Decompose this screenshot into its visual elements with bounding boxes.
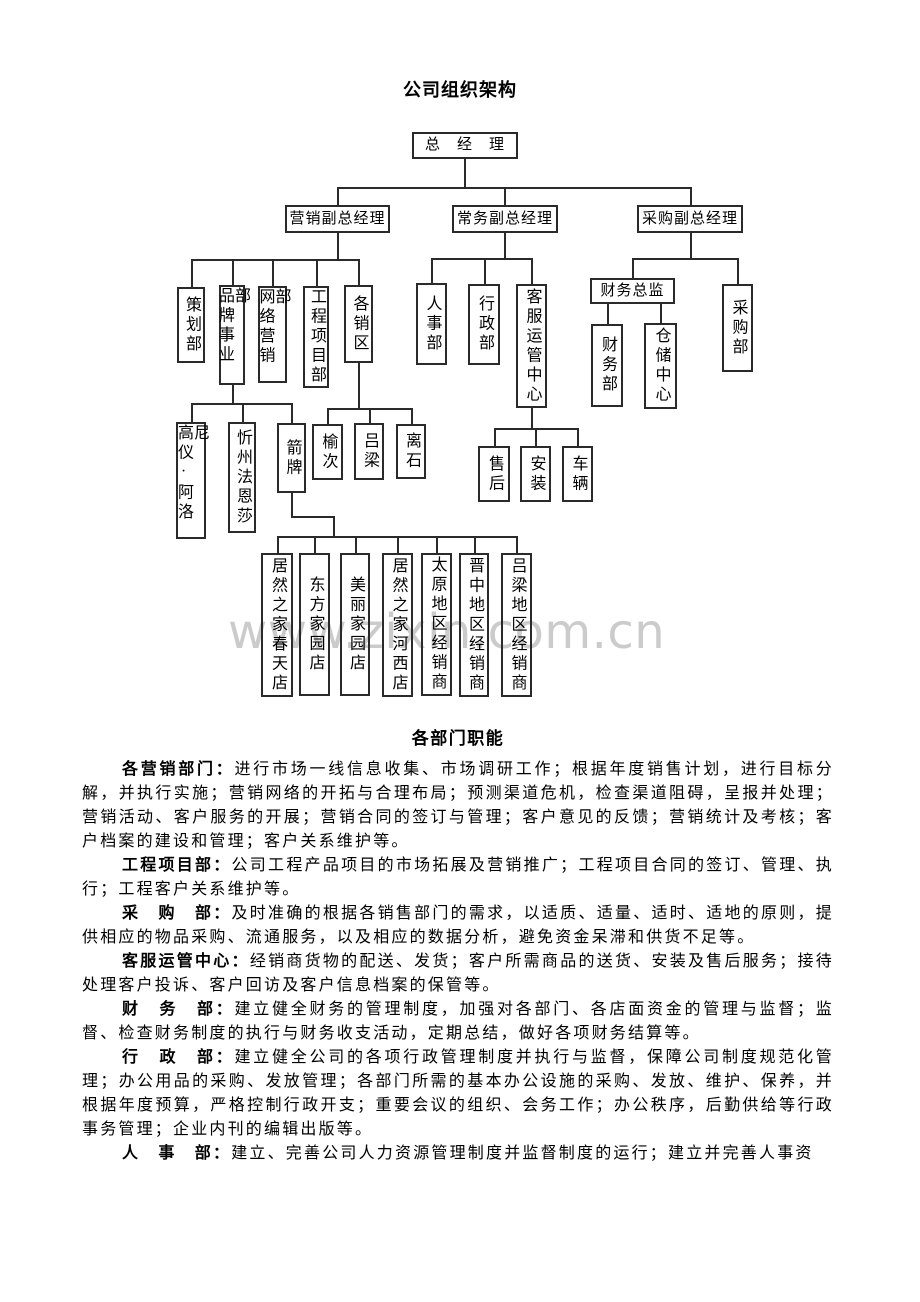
org-node-lishi: 离石 — [396, 424, 426, 479]
connector-line — [291, 493, 293, 516]
connector-line — [535, 428, 537, 446]
org-node-planning-dept: 策划部 — [177, 287, 205, 363]
dept-label-engineering: 工程项目部： — [122, 857, 232, 874]
org-node-gaoyi-aluoni: 高仪·阿洛尼 — [176, 422, 206, 539]
connector-line — [411, 408, 413, 424]
connector-line — [690, 187, 692, 205]
connector-line — [531, 258, 533, 284]
connector-line — [607, 304, 609, 324]
paragraph-customer-service-ops: 客服运管中心：经销商货物的配送、发货；客户所需商品的送货、安装及售后服务；接待处… — [82, 950, 834, 998]
connector-line — [191, 259, 358, 261]
connector-line — [358, 259, 360, 285]
connector-line — [337, 187, 339, 205]
connector-line — [355, 536, 357, 553]
connector-line — [504, 187, 506, 205]
connector-line — [516, 536, 518, 553]
paragraph-engineering-project-dept: 工程项目部：公司工程产品项目的市场拓展及营销推广；工程项目合同的签订、管理、执行… — [82, 854, 834, 902]
org-node-xinzhou-faenza: 忻州法恩莎 — [228, 422, 256, 533]
org-node-procurement-dept: 采购部 — [722, 284, 753, 372]
document-page: 公司组织架构 www.zixin.com.cn 总 经 理 营销副总经理 常务副… — [0, 0, 920, 1302]
org-node-finance-dept: 财务部 — [591, 324, 623, 407]
org-node-vp-marketing: 营销副总经理 — [285, 205, 390, 233]
connector-line — [436, 536, 438, 553]
org-node-online-marketing-dept: 网络营销部 — [258, 286, 287, 383]
org-node-sales-regions: 各销区 — [344, 285, 373, 363]
dept-text-hr: 建立、完善公司人力资源管理制度并监督制度的运行；建立并完善人事资 — [231, 1145, 813, 1162]
document-title: 公司组织架构 — [0, 76, 920, 102]
org-node-customer-service-ops-center: 客服运管中心 — [516, 284, 547, 408]
dept-label-hr: 人 事 部： — [122, 1145, 231, 1162]
org-node-vp-executive: 常务副总经理 — [452, 205, 558, 233]
org-node-admin-dept: 行政部 — [468, 284, 500, 365]
org-node-after-sales: 售后 — [478, 446, 510, 502]
org-node-dongfang-jiayuan-store: 东方家园店 — [299, 553, 330, 696]
dept-label-finance: 财 务 部： — [122, 1001, 235, 1018]
connector-line — [431, 258, 531, 260]
connector-line — [531, 408, 533, 428]
connector-line — [369, 408, 371, 423]
connector-line — [191, 259, 193, 287]
org-node-lvliang-region-dealer: 吕梁地区经销商 — [501, 553, 532, 697]
connector-line — [337, 233, 339, 259]
paragraph-marketing-depts: 各营销部门：进行市场一线信息收集、市场调研工作；根据年度销售计划，进行目标分解，… — [82, 758, 834, 854]
connector-line — [397, 536, 399, 553]
org-node-taiyuan-region-dealer: 太原地区经销商 — [421, 553, 452, 696]
connector-line — [291, 403, 293, 423]
org-node-engineering-project-dept: 工程项目部 — [303, 286, 329, 388]
connector-line — [737, 258, 739, 284]
connector-line — [494, 428, 496, 446]
connector-line — [232, 259, 234, 285]
connector-line — [660, 304, 662, 323]
org-node-vehicles: 车辆 — [562, 446, 593, 502]
org-node-arrow-brand: 箭牌 — [277, 423, 306, 493]
connector-line — [333, 516, 335, 536]
connector-line — [272, 259, 274, 286]
connector-line — [316, 259, 318, 286]
org-node-warehouse-center: 仓储中心 — [644, 323, 677, 409]
org-node-brand-business-dept: 品牌事业部 — [219, 285, 245, 385]
dept-label-customer-service: 客服运管中心： — [122, 953, 250, 970]
connector-line — [242, 403, 244, 422]
connector-line — [191, 403, 193, 422]
paragraph-procurement-dept: 采 购 部：及时准确的根据各销售部门的需求，以适质、适量、适时、适地的原则，提供… — [82, 902, 834, 950]
connector-line — [690, 233, 692, 258]
connector-line — [632, 258, 634, 278]
department-functions-section: 各部门职能 各营销部门：进行市场一线信息收集、市场调研工作；根据年度销售计划，进… — [82, 727, 834, 1166]
connector-line — [327, 408, 329, 424]
functions-section-title: 各部门职能 — [82, 727, 834, 751]
org-node-finance-director: 财务总监 — [590, 278, 675, 304]
connector-line — [314, 536, 316, 553]
org-node-hr-dept: 人事部 — [416, 283, 447, 365]
connector-line — [632, 258, 737, 260]
connector-line — [291, 516, 333, 518]
dept-label-procurement: 采 购 部： — [122, 905, 232, 922]
connector-line — [464, 159, 466, 187]
dept-label-marketing: 各营销部门： — [122, 761, 235, 778]
connector-line — [504, 233, 506, 258]
org-node-vp-procurement: 采购副总经理 — [637, 205, 743, 233]
org-node-lvliang: 吕梁 — [354, 423, 384, 480]
paragraph-admin-dept: 行 政 部：建立健全公司的各项行政管理制度并执行与监督，保障公司制度规范化管理；… — [82, 1046, 834, 1142]
connector-line — [431, 258, 433, 283]
connector-line — [337, 187, 692, 189]
org-node-general-manager: 总 经 理 — [412, 132, 518, 159]
org-node-yuci: 榆次 — [312, 424, 343, 480]
org-node-juran-home-spring-store: 居然之家春天店 — [261, 553, 293, 697]
paragraph-hr-dept: 人 事 部：建立、完善公司人力资源管理制度并监督制度的运行；建立并完善人事资 — [82, 1142, 834, 1166]
org-node-juran-home-hexi-store: 居然之家河西店 — [382, 553, 413, 697]
connector-line — [358, 363, 360, 408]
connector-line — [277, 536, 279, 553]
org-node-jinzhong-region-dealer: 晋中地区经销商 — [459, 553, 489, 697]
connector-line — [232, 385, 234, 403]
org-node-installation: 安装 — [520, 446, 551, 502]
paragraph-finance-dept: 财 务 部：建立健全财务的管理制度，加强对各部门、各店面资金的管理与监督；监督、… — [82, 998, 834, 1046]
org-node-meili-jiayuan-store: 美丽家园店 — [340, 553, 370, 696]
connector-line — [484, 258, 486, 284]
connector-line — [577, 428, 579, 446]
connector-line — [474, 536, 476, 553]
connector-line — [191, 403, 291, 405]
dept-label-admin: 行 政 部： — [122, 1049, 235, 1066]
